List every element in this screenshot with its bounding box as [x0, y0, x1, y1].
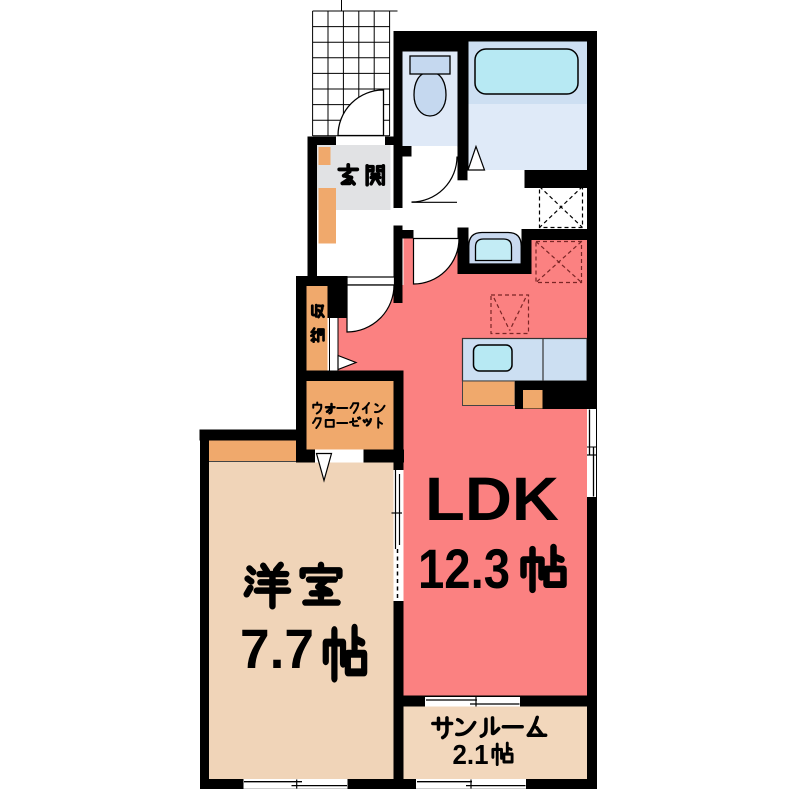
svg-text:7.7: 7.7 — [240, 617, 314, 680]
svg-text:LDK: LDK — [425, 465, 559, 533]
svg-text:12.3: 12.3 — [418, 537, 510, 600]
svg-text:2.1: 2.1 — [453, 739, 489, 770]
